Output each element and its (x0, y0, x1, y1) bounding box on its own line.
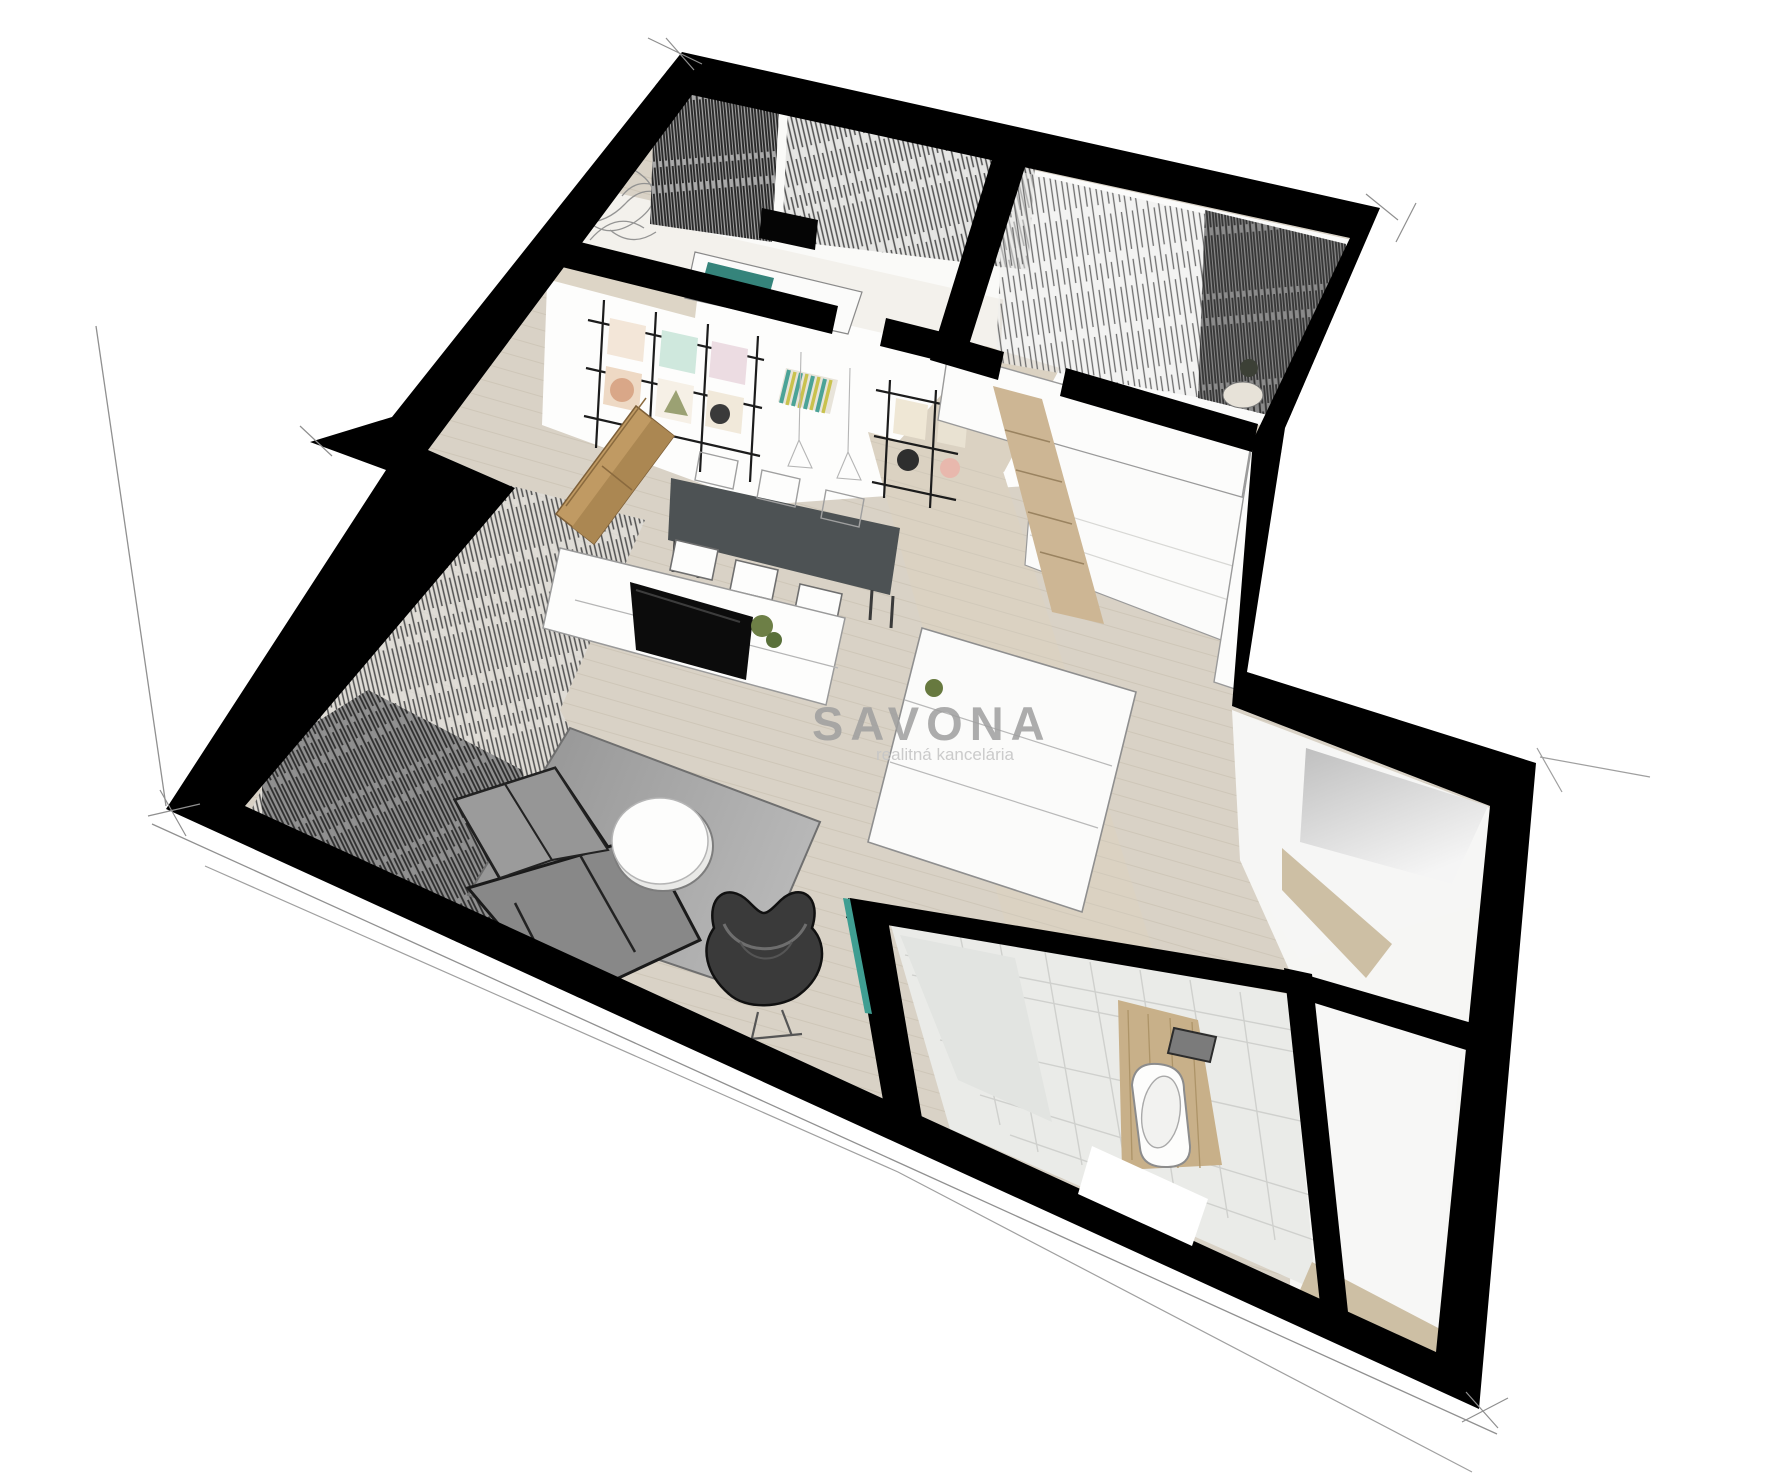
svg-text:realitná kancelária: realitná kancelária (876, 745, 1015, 764)
svg-text:SAVONA: SAVONA (812, 697, 1052, 750)
